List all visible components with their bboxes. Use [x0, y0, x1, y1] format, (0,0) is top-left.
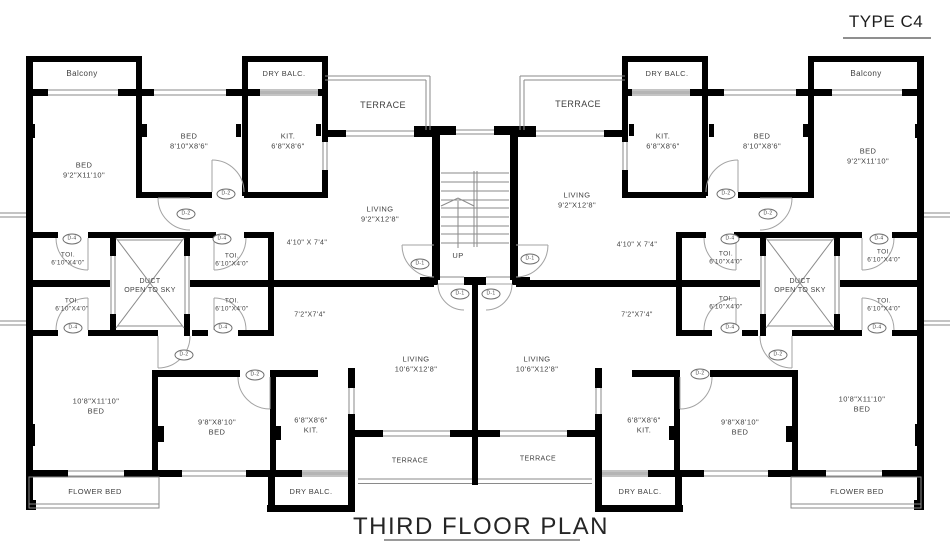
label-bed-92-left: BED 9'2"X11'10" [63, 160, 105, 180]
floorplan-left-half [0, 56, 480, 512]
label-toi-top-outer-right: TOI. 6'10"X4'0" [867, 249, 901, 266]
door-tag-d-2: D-2 [177, 209, 196, 220]
label-dry-balc-bot-right: DRY BALC. [619, 487, 662, 497]
label-toi-top-inner-right: TOI. 6'10"X4'0" [709, 251, 743, 268]
label-passage-right: 4'10" X 7'4" [617, 240, 657, 249]
label-bed-810-right: BED 8'10"X8'6" [743, 131, 781, 151]
label-toi-bot-outer-right: TOI. 6'10"X4'0" [867, 298, 901, 315]
door-tag-d-4: D-4 [721, 234, 740, 245]
door-tag-d-1: D-1 [451, 289, 470, 300]
label-living-bot-left: LIVING 10'6"X12'8" [395, 354, 438, 374]
floor-plan-page: BalconyDRY BALC.BED 8'10"X8'6"KIT. 6'8"X… [0, 0, 950, 557]
label-living-top-left: LIVING 9'2"X12'8" [361, 204, 399, 224]
label-duct-left: DUCT OPEN TO SKY [124, 277, 176, 295]
floorplan-right-half [470, 56, 950, 512]
door-tag-d-2: D-2 [175, 350, 194, 361]
plan-title-underline [384, 539, 580, 541]
label-kit-top-right: KIT. 6'8"X8'6" [646, 131, 679, 151]
door-tag-d-4: D-4 [63, 234, 82, 245]
label-balcony-right: Balcony [850, 69, 881, 79]
label-terrace-bot-left: TERRACE [392, 456, 428, 465]
stairwell [441, 130, 509, 248]
label-corridor-left: 7'2"X7'4" [294, 310, 325, 319]
door-tag-d-2: D-2 [759, 209, 778, 220]
door-tag-d-1: D-1 [482, 289, 501, 300]
label-toi-bot-inner-right: TOI. 6'10"X4'0" [709, 296, 743, 313]
door-tag-d-4: D-4 [721, 323, 740, 334]
type-label: TYPE C4 [849, 12, 923, 32]
door-tag-d-1: D-1 [521, 254, 540, 265]
label-dry-balc-top-right: DRY BALC. [646, 69, 689, 79]
label-toi-bot-inner-left: TOI. 6'10"X4'0" [215, 298, 249, 315]
label-corridor-right: 7'2"X7'4" [621, 310, 652, 319]
door-tag-d-1: D-1 [411, 259, 430, 270]
label-bed-98-right: 9'8"X8'10" BED [721, 417, 759, 437]
label-terrace-bot-right: TERRACE [520, 454, 556, 463]
label-flower-bed-right: FLOWER BED [830, 487, 884, 497]
label-toi-top-outer-left: TOI. 6'10"X4'0" [51, 252, 85, 269]
label-bed-810-left: BED 8'10"X8'6" [170, 131, 208, 151]
label-toi-top-inner-left: TOI. 6'10"X4'0" [215, 253, 249, 270]
door-tag-d-2: D-2 [691, 369, 710, 380]
label-dry-balc-top-left: DRY BALC. [263, 69, 306, 79]
label-kit-bot-left: 6'8"X8'6" KIT. [294, 415, 327, 435]
label-kit-top-left: KIT. 6'8"X8'6" [271, 131, 304, 151]
label-toi-bot-outer-left: TOI. 6'10"X4'0" [55, 298, 89, 315]
label-bed-98-left: 9'8"X8'10" BED [198, 417, 236, 437]
door-tag-d-2: D-2 [246, 370, 265, 381]
label-kit-bot-right: 6'8"X8'6" KIT. [627, 415, 660, 435]
type-label-underline [843, 37, 931, 39]
plan-title: THIRD FLOOR PLAN [353, 513, 609, 541]
label-duct-right: DUCT OPEN TO SKY [774, 277, 826, 295]
door-tag-d-4: D-4 [64, 323, 83, 334]
label-bed-108-left: 10'8"X11'10" BED [73, 396, 120, 416]
door-tag-d-2: D-2 [217, 189, 236, 200]
door-tag-d-2: D-2 [717, 189, 736, 200]
label-bed-92-right: BED 9'2"X11'10" [847, 146, 889, 166]
label-passage-left: 4'10" X 7'4" [287, 238, 327, 247]
door-tag-d-4: D-4 [214, 323, 233, 334]
label-living-top-right: LIVING 9'2"X12'8" [558, 190, 596, 210]
label-flower-bed-left: FLOWER BED [68, 487, 122, 497]
label-terrace-top-right: TERRACE [555, 99, 601, 111]
label-balcony-left: Balcony [66, 69, 97, 79]
label-bed-108-right: 10'8"X11'10" BED [839, 394, 886, 414]
label-dry-balc-bot-left: DRY BALC. [290, 487, 333, 497]
door-tag-d-4: D-4 [213, 234, 232, 245]
label-stairs-up: UP [452, 251, 463, 261]
door-tag-d-4: D-4 [868, 323, 887, 334]
door-tag-d-2: D-2 [769, 350, 788, 361]
label-living-bot-right: LIVING 10'6"X12'8" [516, 354, 559, 374]
door-tag-d-4: D-4 [870, 234, 889, 245]
label-terrace-top-left: TERRACE [360, 100, 406, 112]
